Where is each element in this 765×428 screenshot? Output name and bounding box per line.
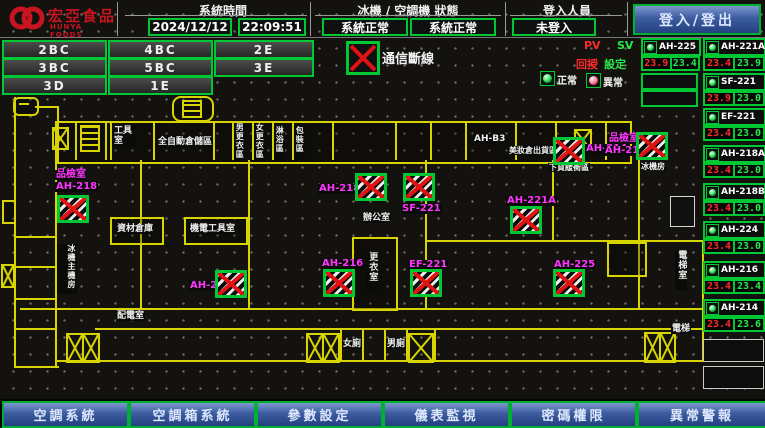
unit-name-label: SF-221 bbox=[721, 77, 756, 87]
unit-name-label: AH-216 bbox=[721, 265, 758, 275]
floor-button-3e[interactable]: 3E bbox=[214, 58, 314, 77]
empty-slot bbox=[641, 73, 698, 90]
unit-ah-221a-values: 23.4 23.9 bbox=[703, 56, 765, 71]
unit-ah-214-values: 23.4 23.6 bbox=[703, 317, 765, 332]
room-label: 資材倉庫 bbox=[116, 224, 154, 234]
unit-name-label: AH-214 bbox=[721, 303, 758, 313]
unit-ef-221-values: 23.4 23.0 bbox=[703, 126, 765, 141]
room-label: 美妝倉出貨區 bbox=[508, 146, 558, 155]
sv-value: 23.9 bbox=[734, 57, 764, 70]
stairwell-marker bbox=[1, 264, 15, 288]
stairwell-marker bbox=[52, 127, 69, 150]
system-time-value: 22:09:51 bbox=[238, 18, 306, 36]
wall bbox=[638, 160, 640, 310]
room-label: 女更衣區 bbox=[254, 123, 265, 161]
room-label: 電梯 bbox=[671, 324, 691, 334]
equipment-label: AH-221A bbox=[506, 196, 557, 206]
stair-icon bbox=[80, 125, 100, 152]
equipment-comm-fail-icon[interactable] bbox=[215, 270, 247, 298]
room-label: 電梯室 bbox=[675, 250, 687, 290]
room-label: 冰機房 bbox=[640, 162, 666, 171]
pv-value: 23.4 bbox=[704, 318, 734, 331]
pv-value: 23.4 bbox=[704, 280, 734, 293]
wall bbox=[430, 123, 432, 160]
normal-label: 正常 bbox=[557, 72, 577, 87]
machine-status-label: 冰機 / 空調機 狀態 bbox=[318, 2, 498, 19]
sv-value: 23.0 bbox=[734, 92, 764, 105]
floor-button-3bc[interactable]: 3BC bbox=[2, 58, 107, 77]
room-label: 配電室 bbox=[116, 311, 145, 321]
pv-label: PV bbox=[584, 39, 601, 52]
status-led bbox=[706, 148, 719, 161]
status-led bbox=[706, 186, 719, 199]
unit-sf-221-values: 23.9 23.0 bbox=[703, 91, 765, 106]
equipment-comm-fail-icon[interactable] bbox=[403, 173, 435, 201]
room-label: 辦公室 bbox=[362, 213, 391, 223]
wall bbox=[75, 123, 77, 160]
equipment-label: 品檢室 bbox=[55, 170, 87, 180]
empty-slot bbox=[641, 90, 698, 107]
unit-ef-221[interactable]: EF-221 bbox=[703, 108, 765, 126]
setpoint-label: 設定 bbox=[604, 56, 626, 72]
unit-ah-218a-values: 23.4 23.0 bbox=[703, 163, 765, 178]
status-led bbox=[706, 111, 719, 124]
equipment-comm-fail-icon[interactable] bbox=[553, 137, 585, 165]
logo: 宏亞食品 HUNYA FOODS bbox=[8, 2, 116, 36]
wall bbox=[57, 360, 702, 362]
unit-ah-218b-values: 23.4 23.0 bbox=[703, 201, 765, 216]
menu-password-auth[interactable]: 密碼權限 bbox=[510, 401, 637, 428]
room-label: 包裝區 bbox=[294, 126, 305, 160]
divider bbox=[117, 2, 118, 36]
room-strip bbox=[57, 121, 632, 164]
wall bbox=[638, 240, 704, 242]
floor-button-2bc[interactable]: 2BC bbox=[2, 40, 107, 59]
menu-alarm[interactable]: 異常警報 bbox=[637, 401, 765, 428]
room-label: 女廁 bbox=[342, 339, 362, 349]
sv-value: 23.0 bbox=[734, 164, 764, 177]
wall bbox=[248, 160, 250, 310]
hmi-screen: { "header": { "logo_title": "宏亞食品", "log… bbox=[0, 0, 765, 426]
menu-ahu-system[interactable]: 空調箱系統 bbox=[129, 401, 256, 428]
unit-sf-221[interactable]: SF-221 bbox=[703, 73, 765, 91]
stair-icon bbox=[182, 100, 202, 118]
pv-value: 23.9 bbox=[704, 92, 734, 105]
floor-button-2e[interactable]: 2E bbox=[214, 40, 314, 59]
room-box bbox=[2, 200, 16, 224]
room-box bbox=[607, 242, 647, 277]
menu-ac-system[interactable]: 空調系統 bbox=[2, 401, 129, 428]
comm-fail-label: 通信斷線 bbox=[382, 48, 434, 67]
divider bbox=[627, 2, 628, 36]
room-label: 淋浴區 bbox=[274, 126, 285, 160]
status-led bbox=[644, 41, 657, 54]
wall bbox=[14, 266, 57, 268]
unit-ah-216[interactable]: AH-216 bbox=[703, 261, 765, 279]
status-led bbox=[706, 302, 719, 315]
stairwell-marker bbox=[408, 333, 434, 363]
room-label: 男更衣區 bbox=[234, 123, 245, 161]
menu-param-settings[interactable]: 參數設定 bbox=[256, 401, 383, 428]
ahu-status: 系統正常 bbox=[410, 18, 496, 36]
stair-icon bbox=[19, 100, 29, 109]
status-led bbox=[706, 76, 719, 89]
empty-slot bbox=[703, 366, 764, 389]
equipment-comm-fail-icon[interactable] bbox=[636, 132, 668, 160]
sv-label: SV bbox=[617, 39, 633, 52]
wall bbox=[395, 123, 397, 160]
equipment-comm-fail-icon[interactable] bbox=[553, 269, 585, 297]
wall bbox=[14, 366, 59, 368]
unit-name-label: AH-221A bbox=[721, 42, 765, 52]
unit-ah-224-values: 23.4 23.0 bbox=[703, 239, 765, 254]
abnormal-led bbox=[586, 73, 601, 88]
divider bbox=[505, 2, 506, 36]
room-label: 男廁 bbox=[386, 339, 406, 349]
pv-value: 23.9 bbox=[642, 57, 671, 70]
abnormal-label: 異常 bbox=[603, 74, 623, 89]
pv-value: 23.4 bbox=[704, 164, 734, 177]
sv-value: 23.0 bbox=[734, 240, 764, 253]
wall bbox=[35, 106, 59, 108]
document-box bbox=[670, 196, 695, 227]
wall bbox=[14, 236, 57, 238]
chiller-status: 系統正常 bbox=[322, 18, 408, 36]
unit-name-label: EF-221 bbox=[721, 112, 756, 122]
divider bbox=[310, 2, 311, 36]
wall bbox=[14, 298, 57, 300]
wall bbox=[153, 123, 155, 160]
login-user-label: 登入人員 bbox=[512, 2, 622, 19]
unit-ah-221a[interactable]: AH-221A bbox=[703, 38, 765, 56]
room-label: 機電工具室 bbox=[189, 224, 236, 234]
feedback-label: 回授 bbox=[576, 56, 598, 72]
login-status: 未登入 bbox=[512, 18, 596, 36]
wall bbox=[110, 123, 112, 160]
sv-value: 23.4 bbox=[671, 57, 700, 70]
wall bbox=[105, 123, 107, 160]
equipment-comm-fail-icon[interactable] bbox=[510, 206, 542, 234]
room-label: 更衣室 bbox=[366, 252, 378, 292]
status-led bbox=[706, 264, 719, 277]
wall bbox=[213, 123, 215, 160]
room-label: 冰機主機房 bbox=[57, 244, 77, 294]
comm-fail-icon bbox=[346, 41, 380, 75]
equipment-label: SF-221 bbox=[401, 204, 442, 214]
unit-name-label: AH-218A bbox=[721, 149, 765, 159]
room-label: AH-B3 bbox=[473, 134, 506, 144]
equipment-label: AH-216 bbox=[321, 259, 364, 269]
pv-value: 23.4 bbox=[704, 202, 734, 215]
login-logout-button[interactable]: 登入/登出 bbox=[633, 4, 761, 35]
underline bbox=[510, 15, 622, 16]
normal-led bbox=[540, 71, 555, 86]
unit-name-label: AH-224 bbox=[721, 225, 758, 235]
status-led bbox=[706, 224, 719, 237]
sv-value: 23.6 bbox=[734, 318, 764, 331]
wall bbox=[332, 123, 334, 160]
wall bbox=[95, 328, 702, 330]
stairwell-marker bbox=[66, 333, 100, 363]
unit-ah-218a[interactable]: AH-218A bbox=[703, 145, 765, 163]
unit-ah-218b[interactable]: AH-218B bbox=[703, 183, 765, 201]
unit-ah-224[interactable]: AH-224 bbox=[703, 221, 765, 239]
equipment-comm-fail-icon[interactable] bbox=[57, 195, 89, 223]
unit-name-label: AH-218B bbox=[721, 187, 765, 197]
equipment-comm-fail-icon[interactable] bbox=[355, 173, 387, 201]
floor-button-1e[interactable]: 1E bbox=[108, 76, 213, 95]
equipment-comm-fail-icon[interactable] bbox=[323, 269, 355, 297]
unit-name-label: AH-225 bbox=[659, 42, 696, 52]
stairwell-marker bbox=[306, 333, 340, 363]
pv-value: 23.4 bbox=[704, 240, 734, 253]
equipment-comm-fail-icon[interactable] bbox=[410, 269, 442, 297]
floor-button-4bc[interactable]: 4BC bbox=[108, 40, 213, 59]
floor-button-5bc[interactable]: 5BC bbox=[108, 58, 213, 77]
equipment-label: AH-218 bbox=[55, 182, 98, 192]
unit-ah-214[interactable]: AH-214 bbox=[703, 299, 765, 317]
wall bbox=[362, 330, 364, 361]
room-label: 全自動倉儲區 bbox=[157, 137, 213, 147]
status-led bbox=[706, 41, 719, 54]
system-date-value: 2024/12/12 bbox=[148, 18, 232, 36]
sv-value: 23.4 bbox=[734, 280, 764, 293]
unit-ah-225[interactable]: AH-225 bbox=[641, 38, 701, 56]
sv-value: 23.0 bbox=[734, 202, 764, 215]
stairwell-marker bbox=[644, 332, 676, 363]
underline bbox=[315, 15, 501, 16]
empty-slot bbox=[703, 339, 764, 362]
logo-icon bbox=[8, 2, 46, 34]
menu-meter-monitor[interactable]: 儀表監視 bbox=[383, 401, 510, 428]
room-label: 工具室 bbox=[113, 126, 135, 147]
floor-button-3d[interactable]: 3D bbox=[2, 76, 107, 95]
wall bbox=[434, 330, 436, 361]
sv-value: 23.0 bbox=[734, 127, 764, 140]
wall bbox=[465, 123, 467, 160]
system-time-label: 系統時間 bbox=[138, 2, 308, 19]
unit-ah-225-values: 23.9 23.4 bbox=[641, 56, 700, 71]
pv-value: 23.4 bbox=[704, 127, 734, 140]
underline bbox=[125, 15, 307, 16]
wall bbox=[14, 328, 57, 330]
pv-value: 23.4 bbox=[704, 57, 734, 70]
unit-ah-216-values: 23.4 23.4 bbox=[703, 279, 765, 294]
